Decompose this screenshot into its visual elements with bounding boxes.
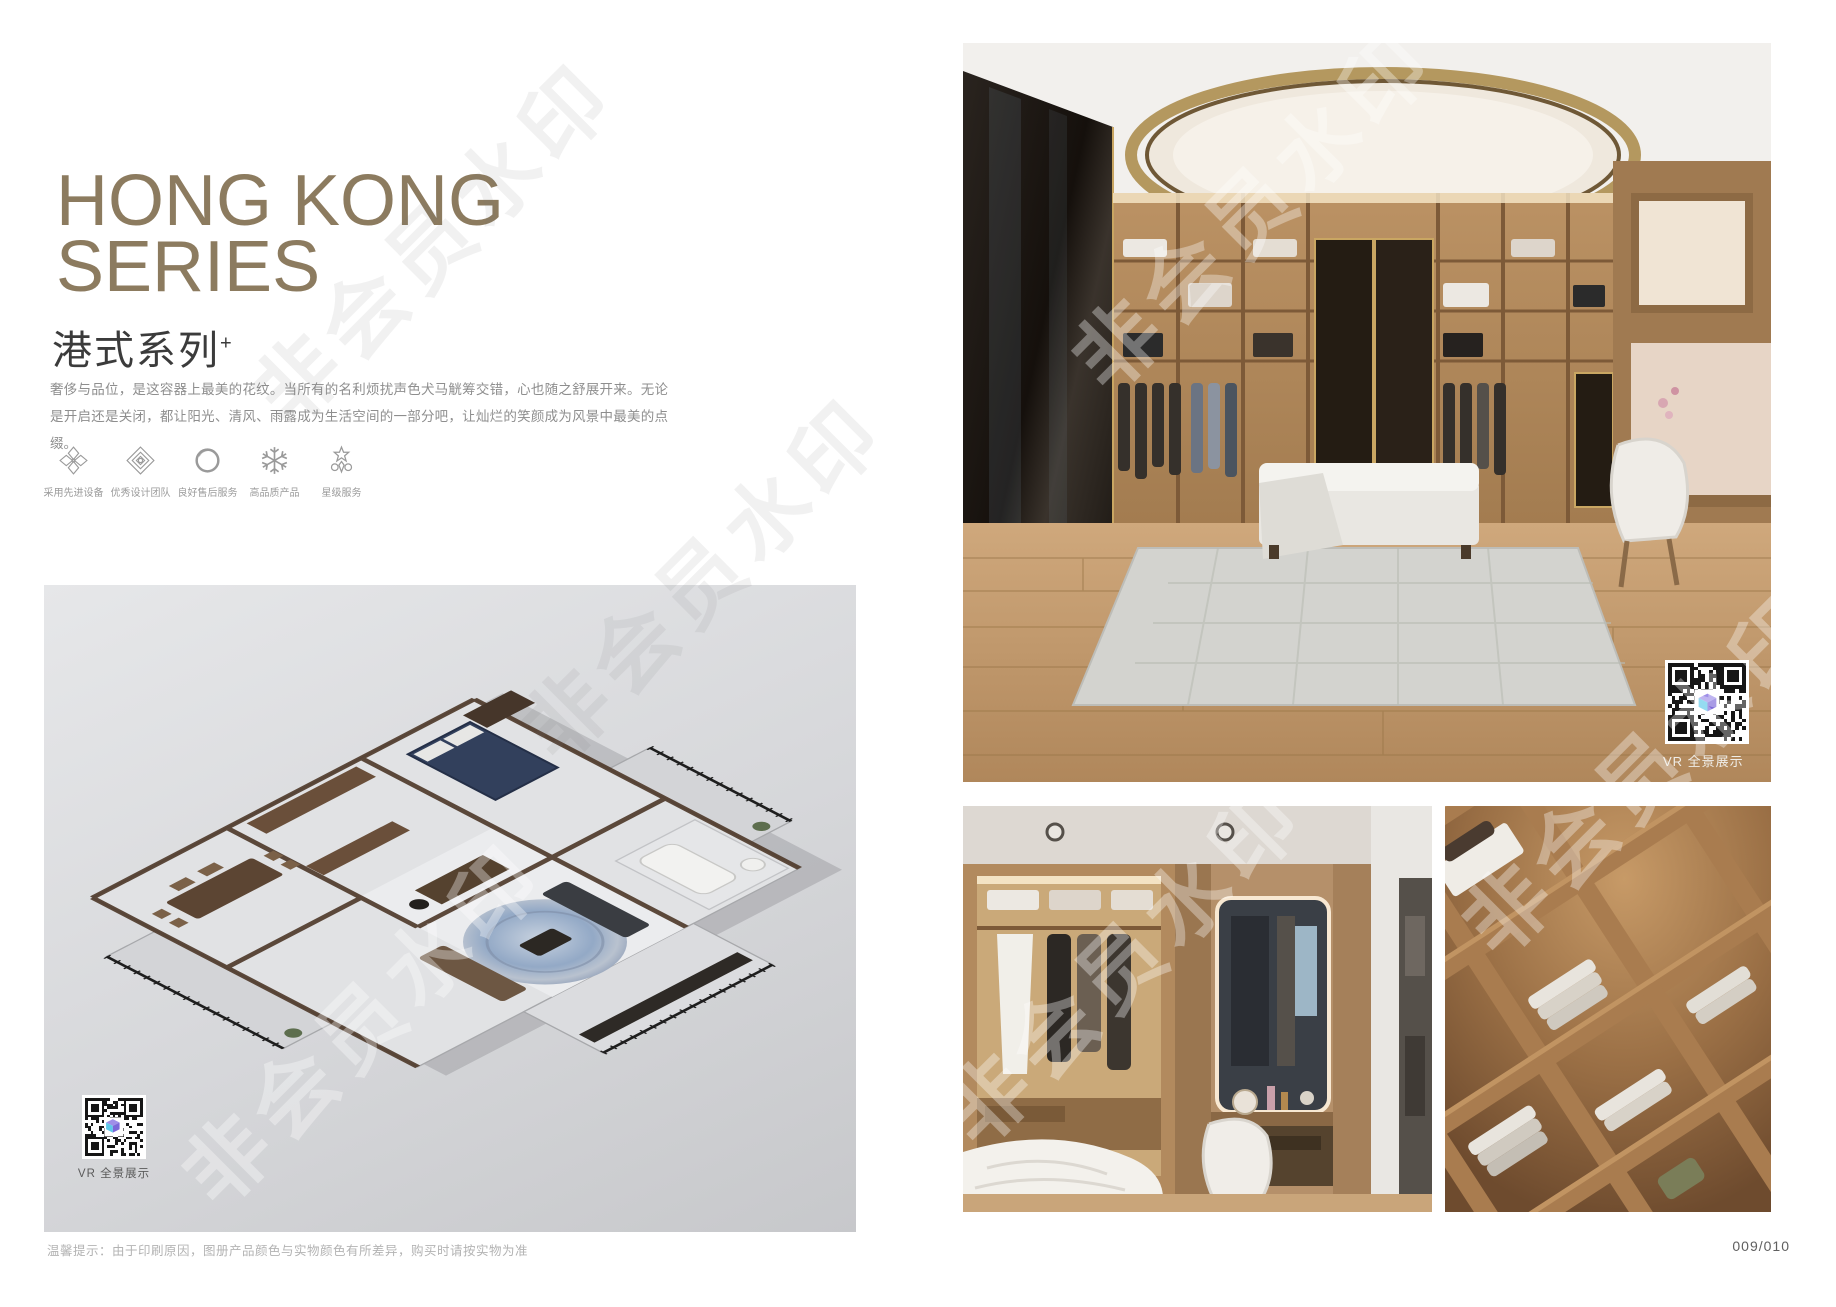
ring-icon bbox=[191, 444, 224, 477]
page-number: 009/010 bbox=[1732, 1238, 1790, 1254]
feature-item: 星级服务 bbox=[308, 444, 375, 499]
star-service-icon bbox=[325, 444, 358, 477]
feature-item: 高品质产品 bbox=[241, 444, 308, 499]
feature-label: 星级服务 bbox=[322, 484, 362, 499]
qr-code bbox=[1665, 660, 1749, 744]
vr-cube-logo-icon bbox=[104, 1117, 123, 1136]
feature-item: 采用先进设备 bbox=[40, 444, 107, 499]
feature-label: 高品质产品 bbox=[250, 484, 300, 499]
feature-label: 采用先进设备 bbox=[44, 484, 104, 499]
showroom-photo: VR 全景展示 bbox=[963, 43, 1771, 782]
feature-list: 采用先进设备 优秀设计团队 良好售后服务 高品质产品 bbox=[40, 444, 375, 499]
shelf-closeup-photo bbox=[1445, 806, 1771, 1212]
subtitle-superscript: + bbox=[220, 333, 234, 355]
floorplan-image: VR 全景展示 bbox=[44, 585, 856, 1232]
shelf-render bbox=[1445, 806, 1771, 1212]
feature-item: 优秀设计团队 bbox=[107, 444, 174, 499]
title-line1: HONG KONG bbox=[56, 168, 504, 234]
showroom-render bbox=[963, 43, 1771, 782]
subtitle-text: 港式系列 bbox=[52, 329, 220, 373]
footer-note: 温馨提示：由于印刷原因，图册产品颜色与实物颜色有所差异，购买时请按实物为准 bbox=[47, 1240, 528, 1259]
feature-label: 优秀设计团队 bbox=[111, 484, 171, 499]
vr-cube-logo-icon bbox=[1694, 689, 1719, 714]
feature-label: 良好售后服务 bbox=[178, 484, 238, 499]
vr-panorama-label: VR 全景展示 bbox=[62, 1165, 166, 1181]
page-title: HONG KONG SERIES bbox=[56, 168, 504, 300]
feature-item: 良好售后服务 bbox=[174, 444, 241, 499]
title-line2: SERIES bbox=[56, 234, 504, 300]
catalog-page: HONG KONG SERIES 港式系列+ 奢侈与品位，是这容器上最美的花纹。… bbox=[0, 0, 1836, 1307]
dressing-area-photo bbox=[963, 806, 1432, 1212]
pinwheel-flower-icon bbox=[57, 444, 90, 477]
snowflake-icon bbox=[258, 444, 291, 477]
dressing-render bbox=[963, 806, 1432, 1212]
vr-panorama-label: VR 全景展示 bbox=[1663, 751, 1771, 770]
qr-code bbox=[82, 1095, 146, 1159]
page-subtitle: 港式系列+ bbox=[52, 318, 234, 376]
diamond-ornament-icon bbox=[124, 444, 157, 477]
floorplan-render bbox=[44, 585, 856, 1232]
